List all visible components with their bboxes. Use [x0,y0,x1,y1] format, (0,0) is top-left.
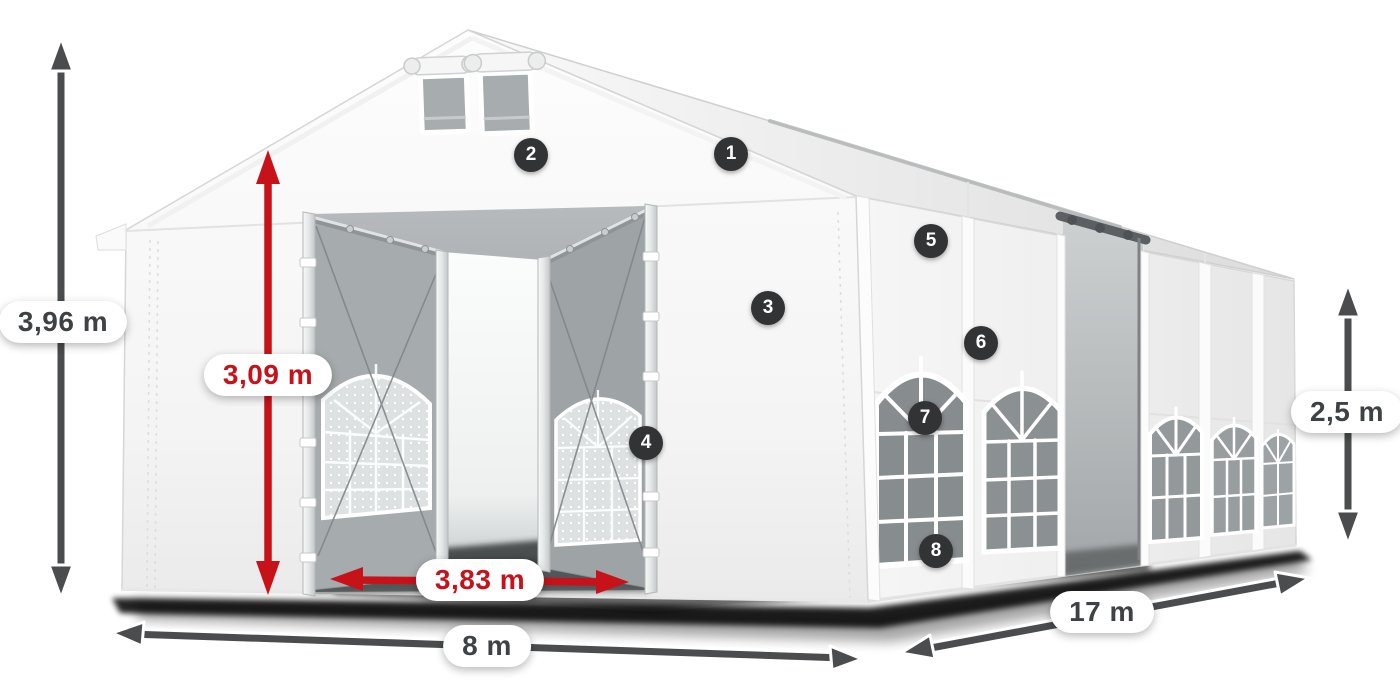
part-marker-1[interactable]: 1 [714,137,748,171]
front-width-label: 8 m [443,625,531,667]
part-marker-3[interactable]: 3 [751,291,785,325]
part-marker-2[interactable]: 2 [514,138,548,172]
dimension-value: 3,96 m [18,306,108,337]
part-marker-4[interactable]: 4 [629,426,663,460]
dimension-value: 8 m [462,630,512,661]
dimension-value: 17 m [1069,596,1135,627]
part-marker-5[interactable]: 5 [914,224,948,258]
tent-illustration [0,0,1400,700]
dimension-value: 3,09 m [223,359,313,390]
part-marker-7[interactable]: 7 [908,401,942,435]
side-height-label: 2,5 m [1291,391,1400,433]
side-door-opening [1057,212,1149,577]
part-marker-6[interactable]: 6 [964,326,998,360]
dimension-value: 3,83 m [435,564,525,595]
side-length-label: 17 m [1050,591,1154,633]
tent-dimension-diagram: 3,96 m 3,09 m 3,83 m 8 m 17 m 2,5 m 1 2 … [0,0,1400,700]
entrance-width-label: 3,83 m [416,559,544,601]
part-marker-8[interactable]: 8 [919,534,953,568]
front-entrance [300,204,659,596]
side-wall [851,195,1296,602]
total-height-label: 3,96 m [0,301,127,343]
dimension-value: 2,5 m [1310,396,1384,427]
entrance-height-label: 3,09 m [204,354,332,396]
